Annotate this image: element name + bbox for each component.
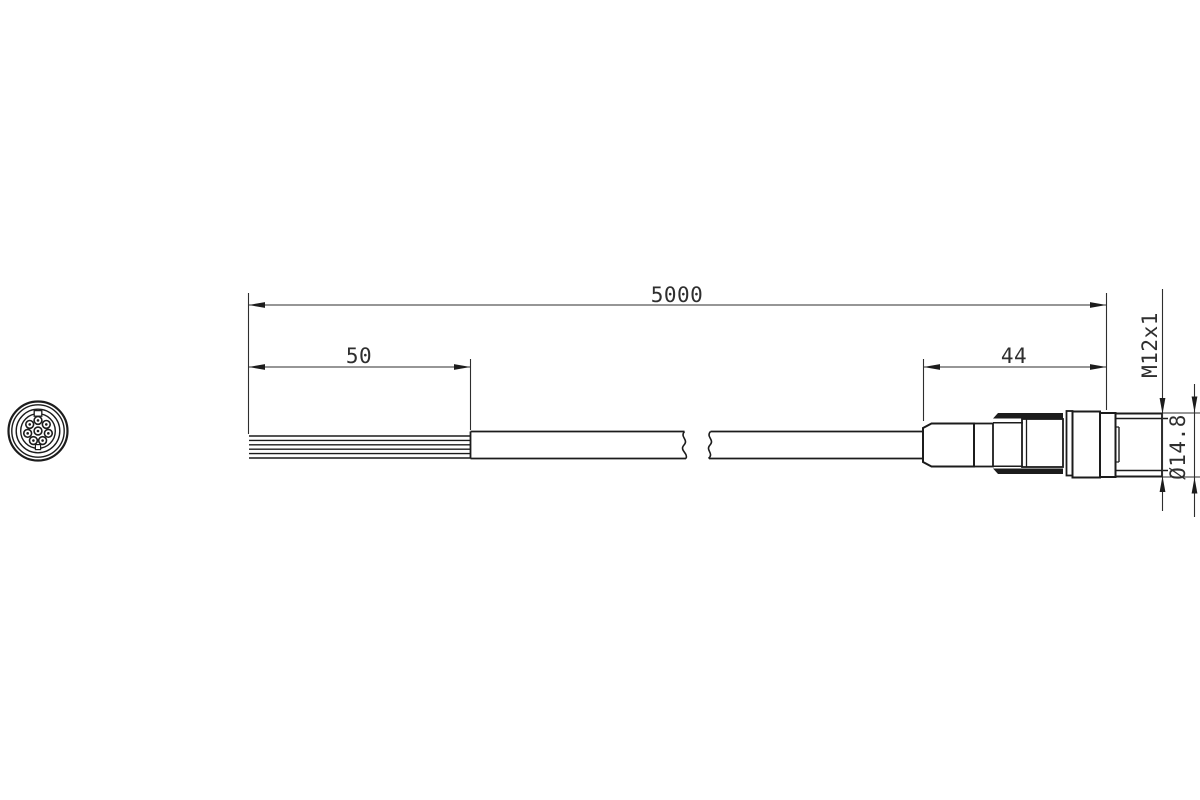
cable-break-line-right (708, 432, 711, 459)
arrow-connector-left (924, 364, 941, 370)
face-pin-dot (41, 439, 44, 442)
cable-jacket (471, 432, 924, 459)
coupling-nut (1073, 412, 1101, 478)
face-pin-dot (37, 419, 40, 422)
arrow-thread-top (1160, 398, 1166, 414)
shell-body (1022, 419, 1063, 467)
arrow-diameter-bottom (1192, 478, 1198, 494)
face-pin-dot (26, 432, 29, 435)
stripped-wires (249, 436, 471, 458)
face-pin-dot (47, 432, 50, 435)
face-pin-dot (32, 439, 35, 442)
technical-drawing-canvas: 5000 50 44 M12x1 Ø14.8 (0, 0, 1200, 800)
face-keyway-notch-bottom (35, 445, 40, 450)
arrow-diameter-top (1192, 397, 1198, 413)
shell-top-bar (993, 413, 1063, 419)
shell-bottom-bar (993, 469, 1063, 475)
face-pin-dot (28, 423, 31, 426)
boot-ring (974, 424, 993, 467)
dimension-label-overall-length: 5000 (627, 283, 727, 307)
nut-washer (1100, 413, 1116, 477)
arrow-overall-right (1090, 302, 1107, 308)
face-pin-dot (37, 430, 40, 433)
arrow-overall-left (249, 302, 266, 308)
connector-face-pins (24, 417, 52, 445)
face-keyway-notch-top (34, 411, 42, 417)
connector-side-view (923, 411, 1200, 478)
arrow-connector-right (1090, 364, 1107, 370)
arrow-strip-right (454, 364, 471, 370)
strain-relief-boot (923, 424, 974, 467)
dimension-label-diameter: Ø14.8 (1166, 397, 1190, 497)
dimension-label-strip-length: 50 (309, 344, 409, 368)
connector-face-view (9, 402, 68, 461)
dimension-arrows (249, 302, 1198, 493)
face-pin-dot (45, 423, 48, 426)
dimension-lines (249, 289, 1195, 517)
cable-drawing (0, 0, 1200, 800)
arrow-thread-bottom (1160, 476, 1166, 492)
dimension-label-thread: M12x1 (1138, 295, 1162, 395)
arrow-strip-left (249, 364, 266, 370)
cable-break-line-left (683, 432, 687, 459)
dimension-label-connector-length: 44 (964, 344, 1064, 368)
